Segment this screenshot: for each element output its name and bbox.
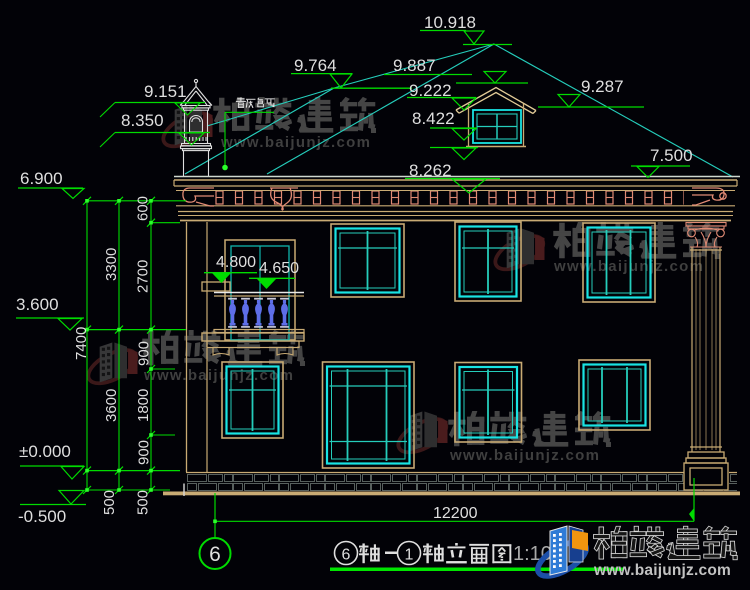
svg-text:12200: 12200 (433, 505, 478, 522)
svg-text:500: 500 (101, 490, 118, 515)
svg-text:3.600: 3.600 (16, 295, 59, 314)
svg-text:2700: 2700 (135, 260, 152, 293)
svg-text:www.baijunjz.com: www.baijunjz.com (449, 447, 600, 464)
svg-text:±0.000: ±0.000 (19, 442, 71, 461)
svg-text:www.baijunjz.com: www.baijunjz.com (220, 134, 371, 151)
svg-text:www.baijunjz.com: www.baijunjz.com (553, 258, 704, 275)
svg-text:600: 600 (135, 196, 152, 221)
svg-text:6: 6 (342, 547, 351, 564)
svg-text:6: 6 (209, 543, 221, 566)
svg-text:9.764: 9.764 (294, 56, 337, 75)
svg-text:-0.500: -0.500 (18, 507, 66, 526)
svg-text:3600: 3600 (103, 389, 120, 422)
svg-text:9.151: 9.151 (144, 82, 187, 101)
svg-text:9.287: 9.287 (581, 77, 624, 96)
svg-text:8.350: 8.350 (121, 111, 164, 130)
svg-text:7.500: 7.500 (650, 146, 693, 165)
svg-text:4.800: 4.800 (216, 254, 256, 271)
svg-text:4.650: 4.650 (259, 260, 299, 277)
svg-text:9.887: 9.887 (393, 56, 436, 75)
svg-text:8.262: 8.262 (409, 161, 452, 180)
svg-text:900: 900 (136, 341, 153, 366)
svg-text:900: 900 (136, 440, 153, 465)
svg-text:1: 1 (405, 547, 414, 564)
svg-text:7400: 7400 (73, 327, 90, 360)
svg-text:8.422: 8.422 (412, 109, 455, 128)
svg-text:1800: 1800 (135, 389, 152, 422)
svg-text:6.900: 6.900 (20, 169, 63, 188)
svg-text:500: 500 (135, 490, 152, 515)
svg-text:3300: 3300 (103, 248, 120, 281)
svg-text:www.baijunjz.com: www.baijunjz.com (593, 562, 731, 579)
svg-text:10.918: 10.918 (424, 13, 476, 32)
